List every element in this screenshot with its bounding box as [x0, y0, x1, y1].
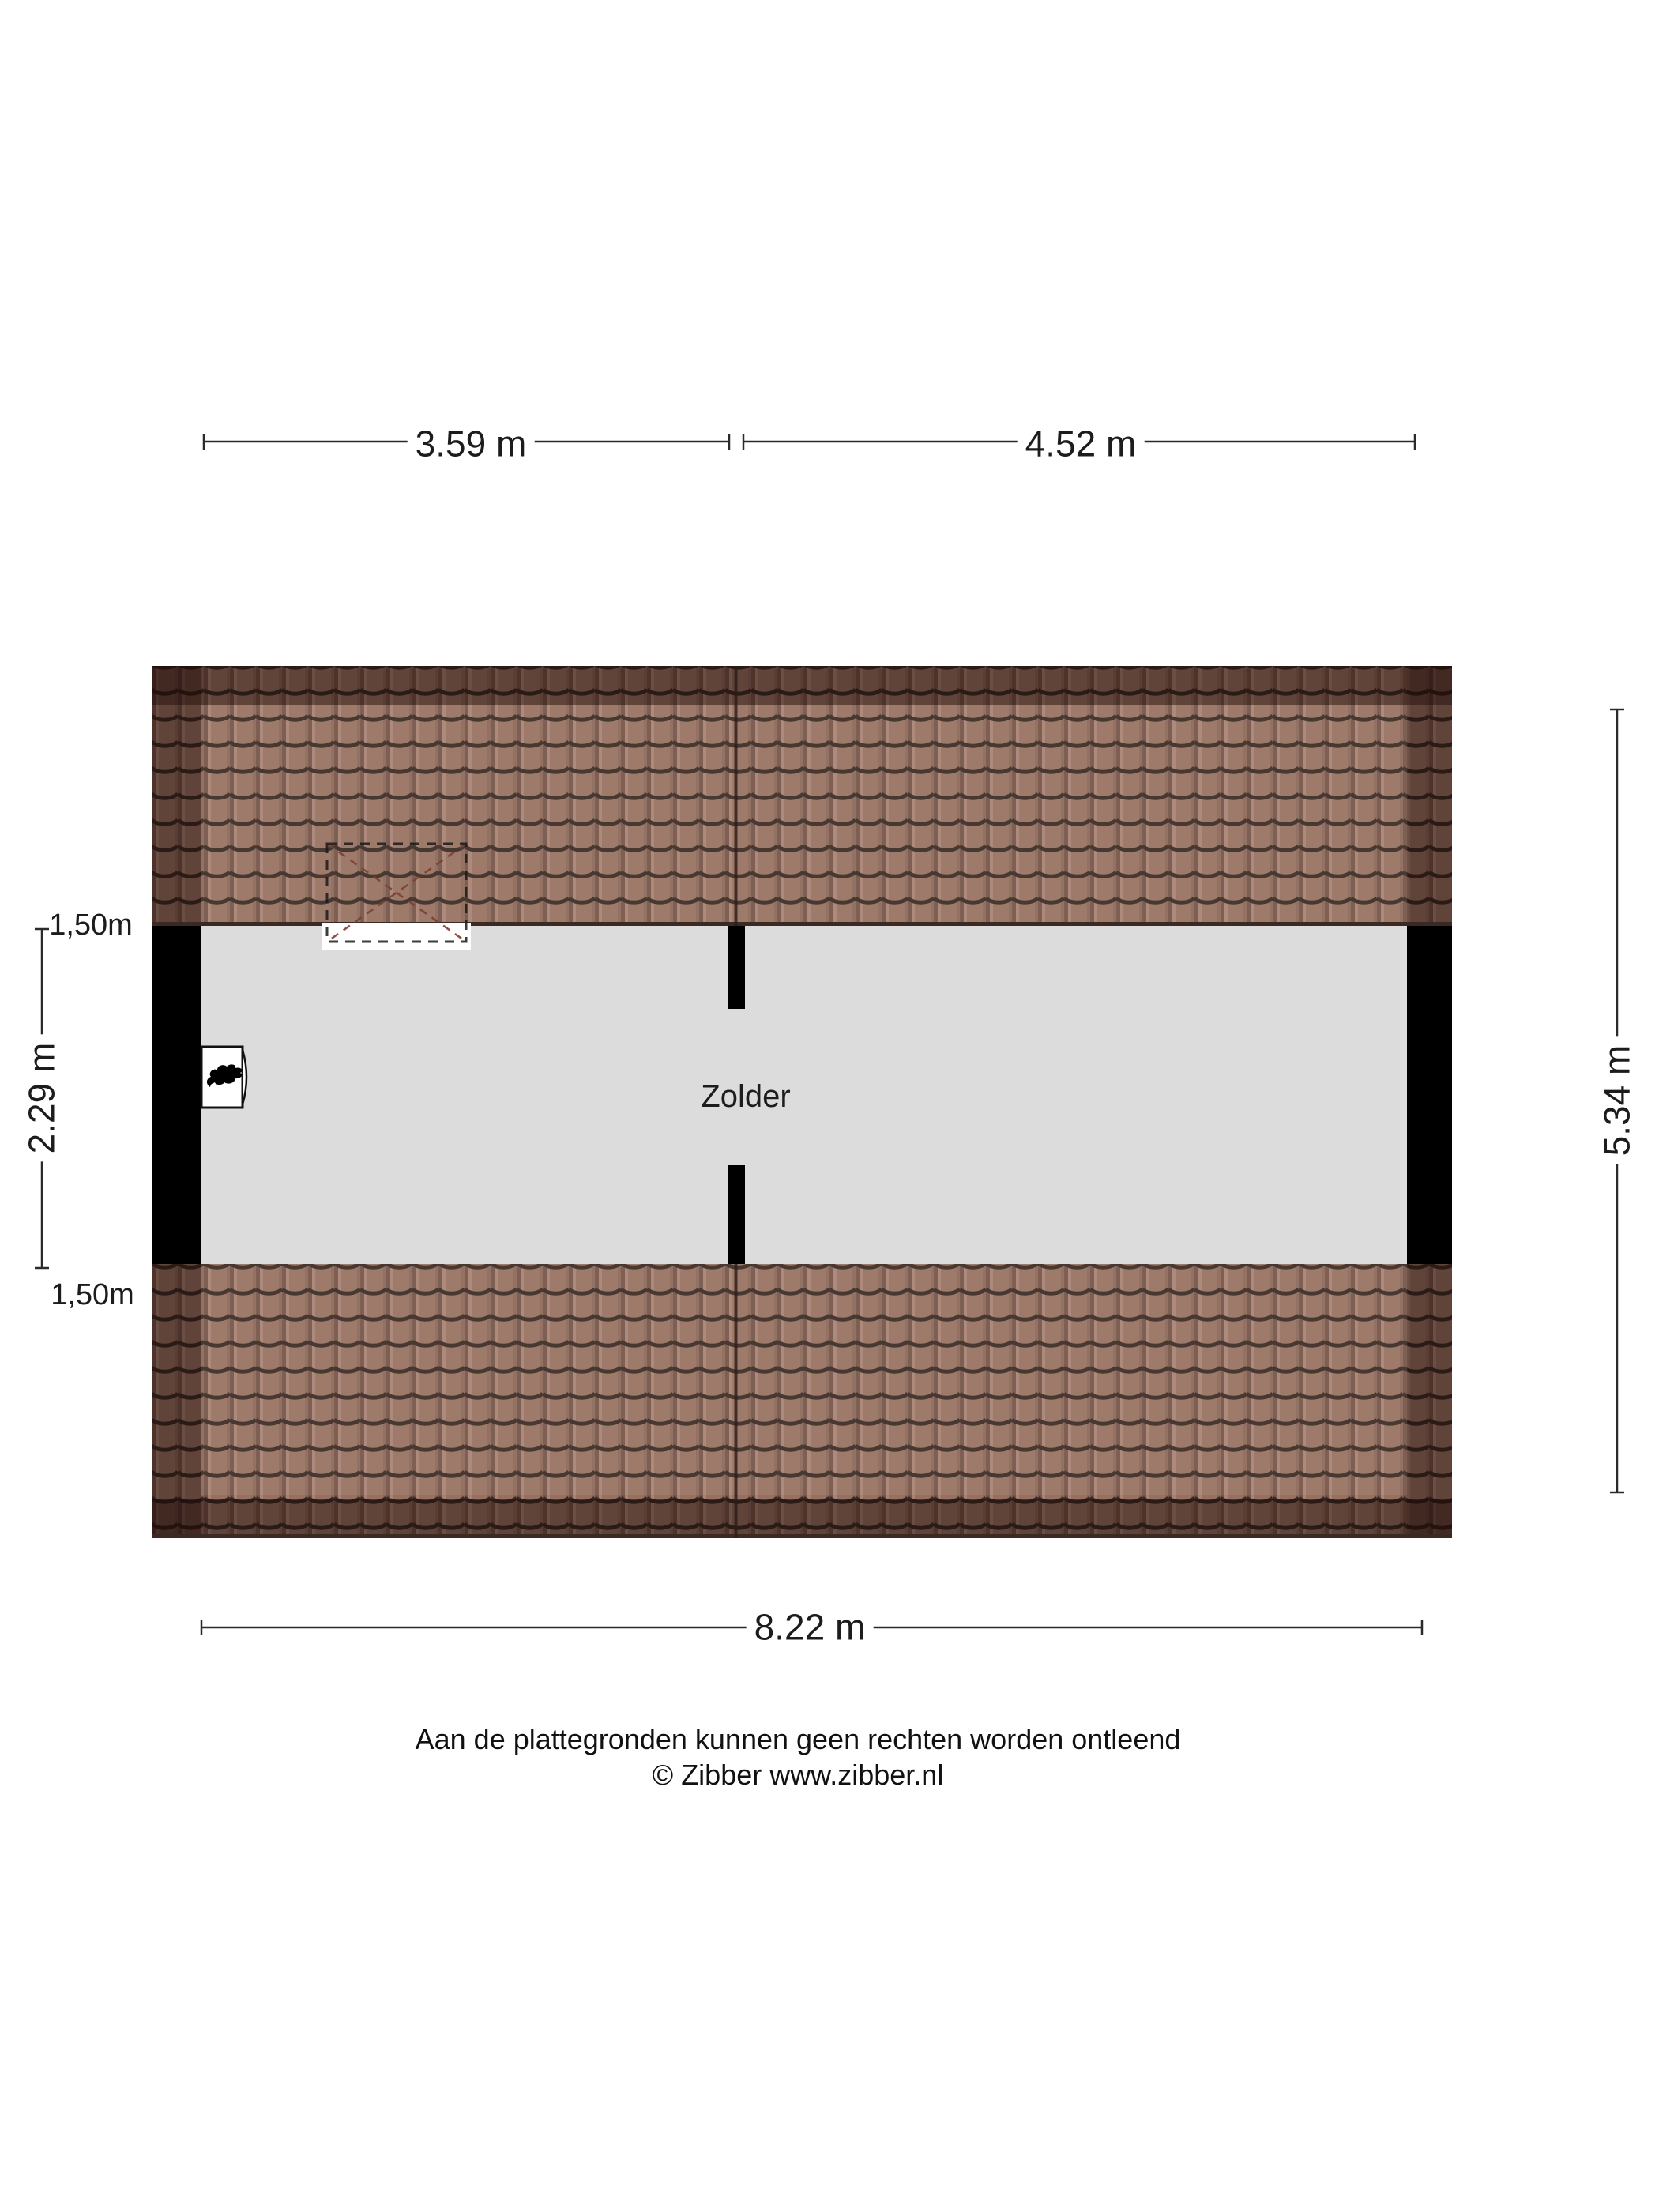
- roof-band-top: [152, 666, 1452, 926]
- roof-band-bottom: [152, 1264, 1452, 1538]
- floorplan-page: { "floorplan": { "room": { "label": "Zol…: [0, 0, 1659, 2212]
- wall-left: [152, 926, 201, 1264]
- wall-partition-top-stub: [728, 926, 745, 1009]
- knee-height-label-top: 1,50m: [49, 909, 133, 942]
- disclaimer-text: Aan de plattegronden kunnen geen rechten…: [416, 1723, 1181, 1756]
- dim-label-bottom: 8.22 m: [747, 1607, 874, 1649]
- dim-label-top-left: 3.59 m: [408, 423, 535, 465]
- dim-label-top-right: 4.52 m: [1018, 423, 1145, 465]
- room-label-zolder: Zolder: [701, 1079, 790, 1114]
- dim-label-right: 5.34 m: [1597, 1037, 1638, 1164]
- wall-partition-bottom-stub: [728, 1165, 745, 1264]
- copyright-text: © Zibber www.zibber.nl: [653, 1759, 944, 1792]
- wall-right: [1407, 926, 1452, 1264]
- attic-floor: [152, 926, 1452, 1264]
- floorplan-drawing: [0, 0, 1659, 2212]
- boiler-icon: [201, 1047, 246, 1108]
- knee-height-label-bottom: 1,50m: [51, 1279, 134, 1312]
- dim-label-left: 2.29 m: [21, 1035, 63, 1162]
